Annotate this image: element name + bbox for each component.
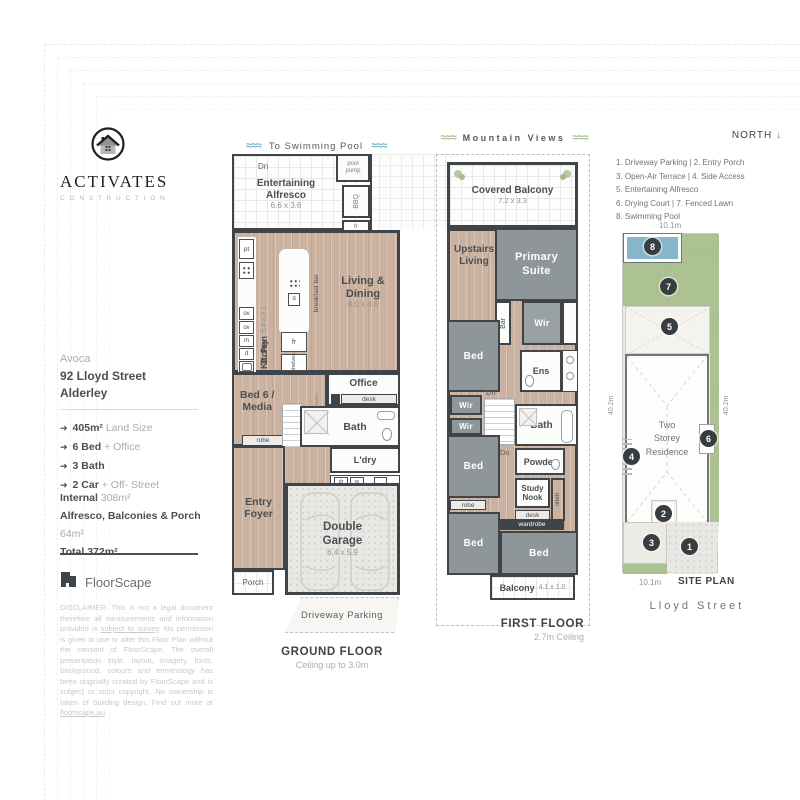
legend-line: 5. Entertaining Alfresco <box>616 183 792 197</box>
first-floor-header: ≈≈≈ Mountain Views ≈≈≈ <box>432 132 596 144</box>
room-label: Porch <box>243 578 264 587</box>
room-office: Office desk <box>327 373 400 406</box>
room-butlers-pantry-label: B. Pty <box>259 333 269 371</box>
legend-line: 3. Open-Air Terrace | 4. Side Access <box>616 170 792 184</box>
room-label: breakfast bar <box>313 247 320 339</box>
room-bed-4: Bed <box>500 531 578 575</box>
area-value: 308m² <box>101 492 131 504</box>
desk-strip: desk <box>341 394 397 404</box>
room-bath: Bath <box>300 406 400 447</box>
room-balcony: Balcony 4.1 x 1.0 <box>490 575 575 600</box>
room-primary-suite: Primary Suite <box>495 228 578 301</box>
vanity-strip <box>562 350 578 392</box>
dn-label: Dn <box>258 162 268 171</box>
residence-label: Two Storey Residence <box>646 419 689 460</box>
driveway-parking: Driveway Parking <box>285 597 399 633</box>
kitchen-island: d <box>279 249 309 335</box>
site-marker-4: 4 <box>623 448 640 465</box>
desk-block <box>331 394 340 404</box>
room-dims: 7.2 x 3.3 <box>498 196 527 205</box>
room-covered-balcony: Covered Balcony 7.2 x 3.3 <box>447 162 578 228</box>
disclaimer-underline: subject to survey <box>101 624 159 633</box>
bathtub-icon <box>561 410 573 443</box>
dishwasher-box: d <box>239 348 254 360</box>
room-bbq: BBQ <box>342 185 370 218</box>
room-porch: Porch <box>232 570 274 595</box>
plan-caption: FIRST FLOOR <box>462 618 584 630</box>
disclaimer-text: . No permission is given to use or alter… <box>60 624 213 707</box>
site-plan-caption: SITE PLAN <box>678 576 788 587</box>
room-label: Ens <box>533 366 550 376</box>
room-dims: 6.6 x 3.6 <box>238 201 334 210</box>
room-living-dining: Living & Dining 8.0 x 4.6 <box>325 275 401 309</box>
room-pool-pump: pool pump <box>336 154 370 182</box>
drying-court-strip <box>710 234 719 522</box>
room-wir-3: Wir <box>450 418 482 435</box>
oven-box: ov <box>239 321 254 334</box>
robe-strip: robe <box>450 500 486 510</box>
feature-rest: + Office <box>104 441 140 453</box>
site-marker-2: 2 <box>655 505 672 522</box>
room-dims: 6.4 x 5.9 <box>327 548 358 557</box>
area-item: Internal 308m² <box>60 489 220 507</box>
floorscape-icon <box>60 571 77 593</box>
basin-icon <box>377 411 395 420</box>
divider-dark <box>60 553 198 555</box>
room-laundry: L'dry <box>330 447 400 473</box>
site-dim-top: 10.1m <box>622 221 718 230</box>
feature-item: ➔6 Bed + Office <box>60 438 220 457</box>
floorscape-name: FloorScape <box>85 575 151 590</box>
divider <box>60 409 198 410</box>
street-label: Lloyd Street <box>622 600 772 612</box>
room-bed-1: Bed <box>447 320 500 392</box>
disclaimer-link: floorscape.au <box>60 708 105 717</box>
feature-bold: 3 Bath <box>73 460 105 472</box>
dn-label: Dn <box>500 448 510 457</box>
arrow-icon: ➔ <box>60 461 68 471</box>
north-label: NORTH <box>732 130 772 141</box>
room-ensuite: Ens <box>520 350 562 392</box>
room-label: Driveway Parking <box>301 610 383 621</box>
ground-floor-header-label: To Swimming Pool <box>269 141 363 152</box>
kitchen-living-zone: pt ov ov m d Kitchen 5.4 x 3.1 d breakfa… <box>232 230 400 373</box>
house-logo-icon <box>88 125 220 170</box>
area-value: 64m² <box>60 528 84 540</box>
room-entry-foyer: Entry Foyer <box>232 446 285 570</box>
site-plan: NORTH ↓ 1. Driveway Parking | 2. Entry P… <box>612 130 792 650</box>
first-floor-caption: FIRST FLOOR 2.7m Ceiling <box>462 618 584 642</box>
room-label: Office <box>349 378 377 389</box>
first-floor-plan: ≈≈≈ Mountain Views ≈≈≈ Covered Balcony 7… <box>432 132 596 652</box>
waves-icon: ≈≈≈ <box>572 132 587 144</box>
linen-strip: linen <box>551 478 565 521</box>
microwave-box: m <box>239 335 254 347</box>
site-dim-left: 40.2m <box>608 370 615 415</box>
site-marker-1: 1 <box>681 538 698 555</box>
area-label: Alfresco, Balconies & Porch <box>60 510 201 522</box>
room-label: Covered Balcony <box>472 185 554 197</box>
room-label: Balcony <box>500 583 535 593</box>
area-item: Alfresco, Balconies & Porch 64m² <box>60 507 220 543</box>
room-entertaining-alfresco: Dn Entertaining Alfresco 6.6 x 3.6 pool … <box>232 154 372 230</box>
plan-caption: GROUND FLOOR <box>262 646 402 658</box>
feature-rest: Land Size <box>106 422 153 434</box>
room-label: BBQ <box>353 194 360 209</box>
plan-caption-sub: 2.7m Ceiling <box>462 632 584 642</box>
room-upstairs-living: Upstairs Living <box>450 244 498 267</box>
room-label: linen <box>555 493 561 506</box>
waves-icon: ≈≈≈ <box>246 140 261 152</box>
area-list: Internal 308m² Alfresco, Balconies & Por… <box>60 489 220 561</box>
ground-floor-plan: ≈≈≈ To Swimming Pool ≈≈≈ Dn Entertaining… <box>232 140 456 680</box>
feature-list: ➔405m² Land Size ➔6 Bed + Office ➔3 Bath… <box>60 419 220 495</box>
north-arrow-icon: ↓ <box>776 130 782 141</box>
logo-subtitle: C O N S T R U C T I O N <box>60 195 220 202</box>
shelves-box: shelves <box>281 354 307 371</box>
room-label: B. Pty <box>259 333 269 371</box>
site-dim-right: 40.2m <box>723 370 730 415</box>
site-marker-6: 6 <box>700 430 717 447</box>
shower-icon <box>519 408 537 426</box>
site-marker-8: 8 <box>644 238 661 255</box>
dn-label: Dn <box>486 388 496 397</box>
room-label: shelves <box>291 353 297 372</box>
room-dims: 4.1 x 1.0 <box>539 584 566 591</box>
room-bath-ff: Bath <box>515 404 578 446</box>
sink-icon <box>239 361 254 372</box>
logo: ACTIVATES C O N S T R U C T I O N <box>60 125 220 202</box>
arrow-icon: ➔ <box>60 442 68 452</box>
room-bed-3: Bed <box>447 512 500 575</box>
site-legend: 1. Driveway Parking | 2. Entry Porch 3. … <box>616 156 792 224</box>
robe-strip: robe <box>242 435 284 446</box>
lawn-verge <box>623 564 667 574</box>
area-item: Total 372m² <box>60 543 220 561</box>
feature-bold: 6 Bed <box>73 441 102 453</box>
room-label: Double Garage <box>323 521 363 547</box>
shower-icon <box>304 410 328 434</box>
basin-icon <box>566 372 574 380</box>
room-label: Bar <box>500 318 507 329</box>
first-floor-header-label: Mountain Views <box>463 133 566 143</box>
room-label: Living & Dining <box>325 275 401 300</box>
feature-item: ➔3 Bath <box>60 457 220 476</box>
residence-footprint: Two Storey Residence <box>625 354 709 524</box>
appliance-strip: pt ov ov m d <box>238 237 256 372</box>
robe-nook <box>562 301 578 345</box>
legend-line: 1. Driveway Parking | 2. Entry Porch <box>616 156 792 170</box>
feature-bold: 405m² <box>73 422 103 434</box>
island-dots-icon <box>289 279 300 288</box>
disclaimer: DISCLAIMER: This is not a legal document… <box>60 603 213 719</box>
area-label: Internal <box>60 492 98 504</box>
room-dims: 5.4 x 3.1 <box>261 306 268 333</box>
ground-floor-caption: GROUND FLOOR Ceiling up to 3.0m <box>262 646 402 670</box>
floorplan-page: ACTIVATES C O N S T R U C T I O N Avoca … <box>0 0 800 800</box>
ground-floor-header: ≈≈≈ To Swimming Pool ≈≈≈ <box>232 140 400 152</box>
floorscape-brand: FloorScape <box>60 571 151 593</box>
cooktop-icon <box>239 262 254 279</box>
room-double-garage: Double Garage 6.4 x 5.9 <box>285 483 400 595</box>
logo-title: ACTIVATES <box>60 172 220 192</box>
north-indicator: NORTH ↓ <box>697 130 782 141</box>
plant-icon <box>453 168 467 182</box>
feature-item: ➔405m² Land Size <box>60 419 220 438</box>
room-label: Entertaining Alfresco <box>238 178 334 201</box>
arrow-icon: ➔ <box>60 423 68 433</box>
island-dishwasher-box: d <box>288 293 300 306</box>
wardrobe-strip: wardrobe <box>500 519 564 530</box>
toilet-icon <box>551 459 560 470</box>
room-label: Bed 6 / Media <box>240 389 274 413</box>
oven-box: ov <box>239 307 254 320</box>
room-bed-2: Bed <box>447 435 500 498</box>
room-wir-primary: Wir <box>522 301 562 345</box>
property-name: Avoca <box>60 353 90 365</box>
site-block: Two Storey Residence 8 7 5 6 4 2 3 1 <box>622 233 718 573</box>
site-marker-5: 5 <box>661 318 678 335</box>
fridge-box: fr <box>281 332 307 352</box>
toilet-icon <box>382 428 392 441</box>
waves-icon: ≈≈≈ <box>371 140 386 152</box>
breakfast-bar-label: breakfast bar <box>313 247 320 339</box>
room-dims: 8.0 x 4.6 <box>325 300 401 309</box>
waves-icon: ≈≈≈ <box>440 132 455 144</box>
legend-line: 6. Drying Court | 7. Fenced Lawn <box>616 197 792 211</box>
room-study-nook: Study Nook <box>515 478 550 508</box>
basin-icon <box>566 356 574 364</box>
plant-icon <box>558 168 572 182</box>
site-marker-7: 7 <box>660 278 677 295</box>
room-label: Entry Foyer <box>244 496 273 520</box>
site-dim-bottom: 10.1m <box>630 578 670 587</box>
room-label: Bath <box>343 421 366 433</box>
room-powder: Powder <box>515 448 565 475</box>
site-marker-3: 3 <box>643 534 660 551</box>
room-label-wrap: Entertaining Alfresco 6.6 x 3.6 <box>238 178 334 210</box>
area-label: Total 372m² <box>60 546 118 558</box>
room-label: L'dry <box>354 455 377 466</box>
pantry-box: pt <box>239 239 254 259</box>
room-wir-2: Wir <box>450 395 482 415</box>
hallway <box>285 447 330 483</box>
property-street: 92 Lloyd Street <box>60 369 146 383</box>
property-suburb: Alderley <box>60 386 107 400</box>
toilet-icon <box>525 375 534 387</box>
plan-caption-sub: Ceiling up to 3.0m <box>262 660 402 670</box>
